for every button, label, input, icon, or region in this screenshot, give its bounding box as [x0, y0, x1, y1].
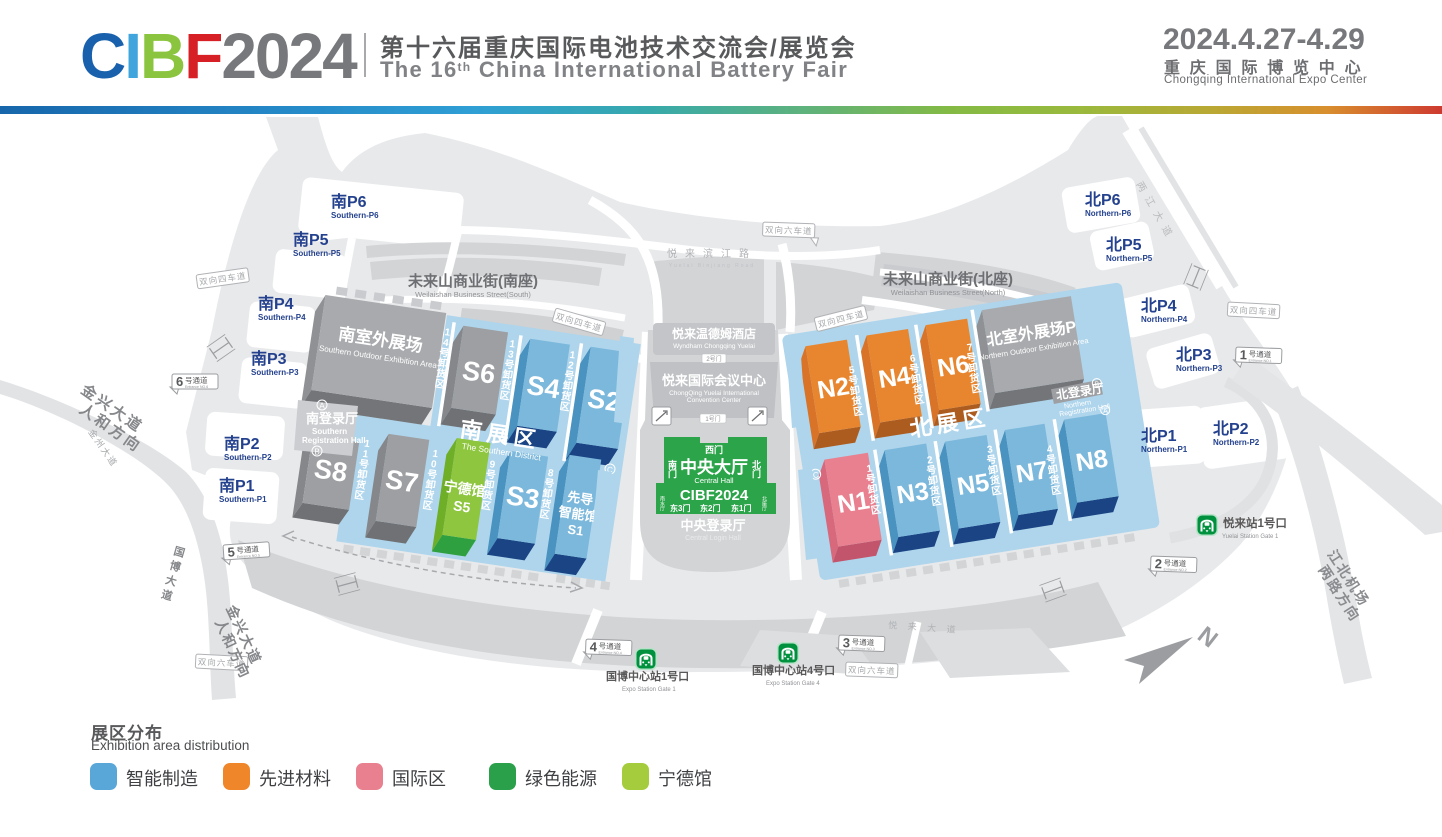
svg-text:号通道: 号通道 [185, 375, 208, 385]
svg-text:N3: N3 [895, 477, 931, 510]
svg-text:Yuelai Binjiang Road: Yuelai Binjiang Road [669, 263, 755, 269]
svg-text:Northern-P1: Northern-P1 [1141, 445, 1188, 454]
svg-text:国博中心站1号口: 国博中心站1号口 [606, 669, 689, 683]
svg-text:B: B [314, 448, 319, 457]
svg-text:Southern-P3: Southern-P3 [251, 368, 299, 377]
svg-text:双向六车道: 双向六车道 [765, 225, 813, 237]
svg-text:Northern-P4: Northern-P4 [1141, 315, 1188, 324]
svg-text:Southern-P4: Southern-P4 [258, 313, 306, 322]
svg-text:Central Hall: Central Hall [694, 476, 734, 485]
svg-text:南登录厅: 南登录厅 [306, 411, 358, 426]
svg-text:Registration Hall: Registration Hall [302, 436, 366, 445]
svg-text:南P3: 南P3 [251, 349, 287, 368]
svg-text:S7: S7 [383, 464, 420, 499]
svg-text:悦来温德姆酒店: 悦来温德姆酒店 [672, 326, 756, 341]
svg-text:Yuelai Station Gate 1: Yuelai Station Gate 1 [1222, 534, 1279, 540]
svg-text:Entrance NO.2: Entrance NO.2 [1163, 567, 1186, 572]
svg-text:北P5: 北P5 [1106, 236, 1142, 254]
svg-text:S3: S3 [504, 480, 541, 515]
svg-text:Central Login Hall: Central Login Hall [685, 535, 741, 542]
svg-text:南水厅: 南水厅 [659, 495, 665, 511]
svg-text:5: 5 [227, 544, 235, 559]
svg-text:S5: S5 [452, 497, 472, 515]
svg-text:国博中心站4号口: 国博中心站4号口 [752, 663, 835, 677]
svg-text:S4: S4 [525, 370, 562, 405]
svg-text:北P4: 北P4 [1141, 297, 1177, 315]
svg-text:南P5: 南P5 [293, 230, 329, 249]
svg-text:未来山商业街(南座): 未来山商业街(南座) [407, 272, 538, 290]
svg-text:Southern-P5: Southern-P5 [293, 249, 341, 258]
svg-text:南P4: 南P4 [258, 294, 294, 313]
svg-text:Northern-P6: Northern-P6 [1085, 209, 1132, 218]
svg-text:2号门: 2号门 [706, 355, 721, 363]
svg-text:门: 门 [752, 468, 761, 479]
svg-text:北座厅: 北座厅 [761, 495, 767, 511]
svg-text:南P1: 南P1 [219, 476, 255, 495]
svg-text:门: 门 [668, 468, 677, 479]
svg-text:悦来站1号口: 悦来站1号口 [1223, 516, 1287, 530]
svg-text:Convention Center: Convention Center [687, 397, 742, 404]
svg-text:6: 6 [176, 374, 183, 389]
svg-text:N8: N8 [1074, 444, 1110, 477]
svg-text:Entrance NO.6: Entrance NO.6 [185, 385, 208, 389]
svg-text:南P6: 南P6 [331, 192, 367, 211]
svg-text:东2门: 东2门 [700, 503, 720, 513]
svg-text:Expo Station Gate 4: Expo Station Gate 4 [766, 681, 820, 687]
svg-text:中央登录厅: 中央登录厅 [680, 518, 745, 533]
svg-text:CIBF2024: CIBF2024 [680, 487, 749, 504]
svg-text:东1门: 东1门 [731, 503, 751, 513]
svg-text:南P2: 南P2 [224, 434, 260, 453]
svg-text:Southern-P6: Southern-P6 [331, 211, 379, 220]
svg-text:N: N [1192, 621, 1222, 653]
svg-text:Northern-P5: Northern-P5 [1106, 254, 1153, 263]
svg-text:北P2: 北P2 [1213, 420, 1249, 438]
svg-text:Southern: Southern [312, 427, 347, 436]
svg-text:悦来滨江路: 悦来滨江路 [667, 247, 757, 260]
svg-text:Entrance NO.4: Entrance NO.4 [598, 650, 621, 655]
svg-text:悦来国际会议中心: 悦来国际会议中心 [662, 373, 766, 388]
svg-text:A: A [319, 402, 325, 411]
svg-text:S6: S6 [460, 355, 497, 390]
svg-text:Southern-P1: Southern-P1 [219, 495, 267, 504]
svg-text:N5: N5 [955, 468, 991, 501]
svg-text:N7: N7 [1014, 456, 1050, 489]
svg-text:Weilaishan Business Street(Sou: Weilaishan Business Street(South) [415, 290, 531, 299]
svg-text:S8: S8 [312, 453, 349, 488]
svg-text:ChongQing Yuelai International: ChongQing Yuelai International [669, 390, 759, 397]
svg-text:北P1: 北P1 [1141, 427, 1177, 445]
svg-text:北P3: 北P3 [1176, 346, 1212, 364]
svg-text:1号门: 1号门 [705, 415, 720, 423]
svg-text:3: 3 [842, 635, 850, 650]
svg-text:Southern-P2: Southern-P2 [224, 453, 272, 462]
svg-text:西门: 西门 [705, 444, 723, 455]
svg-text:Weilaishan Business Street(Nor: Weilaishan Business Street(North) [891, 288, 1006, 297]
svg-text:4: 4 [589, 639, 598, 654]
svg-text:N4: N4 [877, 361, 913, 394]
svg-text:Expo Station Gate 1: Expo Station Gate 1 [622, 687, 676, 693]
svg-text:1: 1 [1239, 347, 1247, 362]
svg-text:2: 2 [1154, 556, 1162, 571]
svg-text:Northern-P3: Northern-P3 [1176, 364, 1223, 373]
svg-text:未来山商业街(北座): 未来山商业街(北座) [882, 270, 1013, 288]
svg-text:东3门: 东3门 [670, 503, 690, 513]
svg-text:双向六车道: 双向六车道 [848, 665, 896, 677]
svg-text:国博大道: 国博大道 [158, 544, 187, 605]
svg-text:Entrance NO.1: Entrance NO.1 [1248, 358, 1271, 363]
svg-text:N1: N1 [836, 486, 872, 519]
svg-text:S1: S1 [567, 521, 585, 538]
svg-text:中央大厅: 中央大厅 [680, 457, 748, 477]
svg-text:Entrance NO.3: Entrance NO.3 [851, 646, 874, 651]
svg-text:N2: N2 [815, 372, 851, 405]
svg-text:Wyndham Chongqing Yuelai: Wyndham Chongqing Yuelai [673, 343, 755, 350]
svg-text:Northern-P2: Northern-P2 [1213, 438, 1260, 447]
svg-text:北P6: 北P6 [1085, 191, 1121, 209]
